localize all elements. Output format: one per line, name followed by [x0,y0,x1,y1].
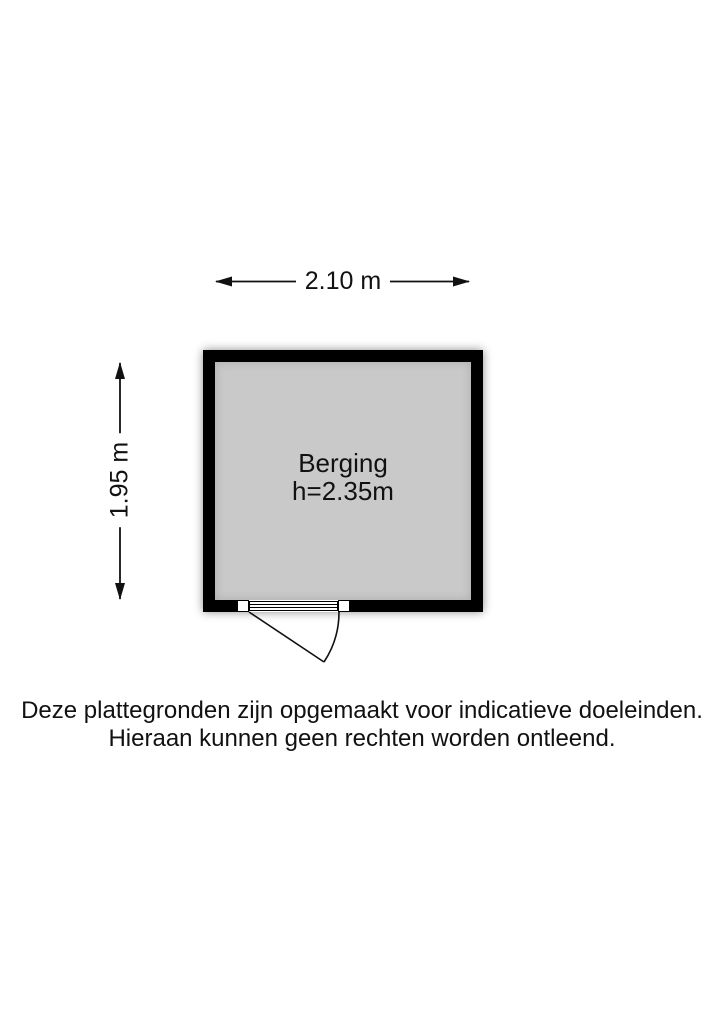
width-dimension-label: 2.10 m [296,266,390,297]
width-dimension: 2.10 m [203,266,483,297]
disclaimer: Deze plattegronden zijn opgemaakt voor i… [0,697,724,753]
floor-plan-page: Berging h=2.35m 2.10 m 1.95 m Deze platt… [0,0,724,1024]
disclaimer-line-2: Hieraan kunnen geen rechten worden ontle… [0,725,724,753]
door-leaf [249,601,338,611]
door-swing-icon [249,612,339,662]
room-ceiling-height: h=2.35m [215,477,471,505]
room-name: Berging [215,449,471,477]
height-dimension: 1.95 m [105,433,136,527]
room-label-group: Berging h=2.35m [215,449,471,505]
door-jamb-left [237,600,249,612]
height-dimension-label: 1.95 m [105,433,136,527]
door-jamb-right [338,600,350,612]
disclaimer-line-1: Deze plattegronden zijn opgemaakt voor i… [0,697,724,725]
